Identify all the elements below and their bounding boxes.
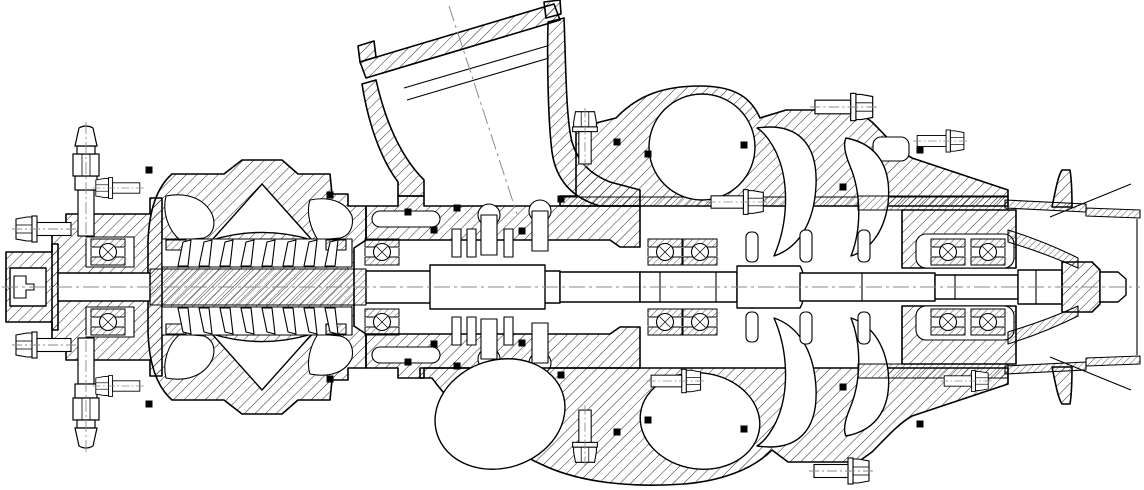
seal-marker (645, 151, 652, 158)
ball-bearing (683, 309, 717, 335)
seal-marker (405, 209, 412, 216)
seal-marker (614, 139, 621, 146)
seal-marker (614, 429, 621, 436)
duct-mount-tab-bottom (1052, 367, 1072, 404)
seal-stud-stem (532, 323, 548, 363)
labyrinth-comb (504, 229, 513, 257)
vane-slot (800, 230, 812, 262)
intake-flange-lip-right (544, 0, 561, 18)
duct-mount-tab-top (1052, 170, 1072, 207)
hex-bolt (93, 376, 144, 397)
vane-slot (746, 232, 758, 262)
seal-stud-stem (481, 319, 497, 359)
duct-wall-top (1005, 200, 1086, 212)
ball-bearing (648, 309, 682, 335)
labyrinth-comb (452, 229, 461, 257)
ball-bearing (683, 239, 717, 265)
screenshot-root: Sectional engineering drawing of a multi… (0, 0, 1144, 490)
seal-marker (405, 359, 412, 366)
seal-marker (146, 167, 153, 174)
seal-marker (454, 363, 461, 370)
seal-marker (645, 417, 652, 424)
labyrinth-comb (467, 229, 476, 257)
seal-marker (519, 340, 526, 347)
seal-marker (454, 205, 461, 212)
seal-marker (327, 376, 334, 383)
rear-flange-plate-top (858, 196, 1008, 210)
seal-marker (431, 227, 438, 234)
vane-slot (800, 312, 812, 344)
labyrinth-comb (452, 317, 461, 345)
seal-marker (741, 142, 748, 149)
labyrinth-comb (504, 317, 513, 345)
seal-marker (741, 426, 748, 433)
duct-wall-bottom (1005, 362, 1086, 374)
vane-slot (858, 230, 870, 262)
seal-stud-stem (532, 211, 548, 251)
seal-marker (519, 228, 526, 235)
seal-marker (431, 341, 438, 348)
seal-marker (917, 421, 924, 428)
vane-slot (746, 312, 758, 342)
seal-stud-stem (481, 215, 497, 255)
seal-marker (840, 184, 847, 191)
labyrinth-comb (467, 317, 476, 345)
cross-section-drawing: Sectional engineering drawing of a multi… (0, 0, 1144, 490)
ball-bearing (648, 239, 682, 265)
duct-wall-bottom-outer (1086, 356, 1140, 366)
ball-bearing (365, 309, 399, 335)
seal-marker (840, 384, 847, 391)
duct-wall-top-outer (1086, 208, 1140, 218)
hex-bolt (93, 178, 144, 199)
compressor-volute-cavity (649, 94, 755, 200)
ball-bearing (365, 239, 399, 265)
seal-marker (917, 147, 924, 154)
seal-marker (558, 196, 565, 203)
seal-marker (558, 372, 565, 379)
seal-marker (146, 401, 153, 408)
seal-marker (327, 192, 334, 199)
vane-slot (858, 312, 870, 344)
